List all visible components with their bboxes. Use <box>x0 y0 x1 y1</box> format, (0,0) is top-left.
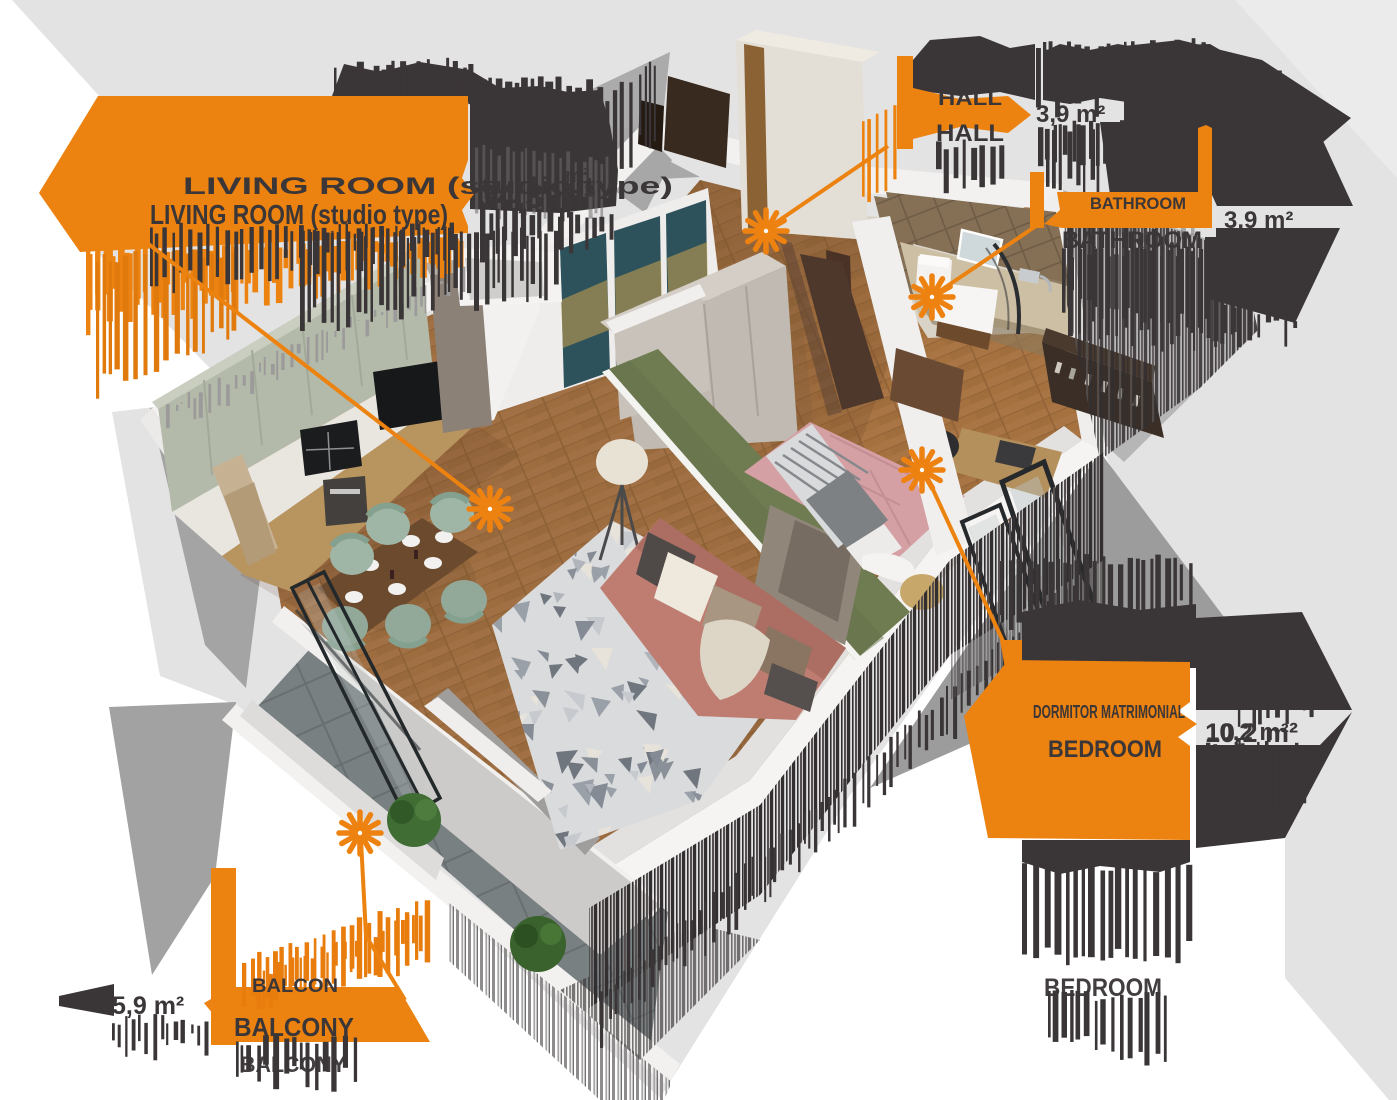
svg-text:LIVING ROOM (studio type): LIVING ROOM (studio type) <box>183 173 673 200</box>
svg-text:BEDROOM: BEDROOM <box>1048 736 1162 763</box>
svg-text:HALL: HALL <box>938 88 1002 110</box>
svg-text:BALCON: BALCON <box>252 976 338 997</box>
svg-text:5,9 m²: 5,9 m² <box>112 992 184 1020</box>
svg-text:DORMITOR MATRIMONIAL: DORMITOR MATRIMONIAL <box>1033 702 1185 722</box>
svg-text:BATHROOM: BATHROOM <box>1090 194 1186 213</box>
svg-text:34,3 m²: 34,3 m² <box>478 178 595 216</box>
svg-text:10,2 m²: 10,2 m² <box>1205 718 1298 748</box>
svg-text:3,9 m²: 3,9 m² <box>1224 207 1293 234</box>
svg-text:HALL: HALL <box>936 120 1004 147</box>
svg-text:3,9 m²: 3,9 m² <box>1036 101 1105 128</box>
